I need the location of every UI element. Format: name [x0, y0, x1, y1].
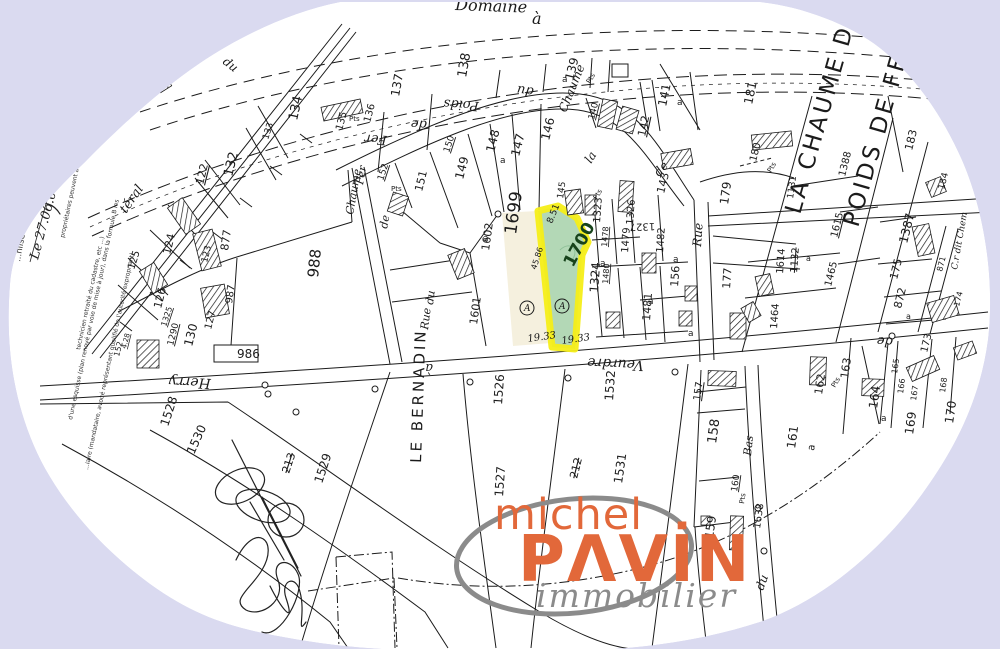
map-label-1482: 1482: [655, 227, 668, 253]
map-label-a: a: [688, 329, 694, 339]
map-label-988: 988: [304, 248, 325, 278]
map-label-a: a: [881, 414, 887, 424]
map-label-1323: 1323: [592, 197, 605, 223]
building-footprint: [564, 189, 583, 215]
map-label-pts: Pts: [349, 115, 360, 123]
map-label-veurdre: Veurdre: [587, 354, 645, 373]
map-label-a: a: [600, 259, 606, 269]
cadastral-map: DomaineàdutéralPoidsdudeFerChaumeladeFer…: [0, 0, 1000, 649]
map-label-1479: 1479: [620, 227, 633, 253]
map-label-1526: 1526: [491, 374, 507, 405]
map-label-à: à: [532, 9, 542, 28]
map-label-a: a: [648, 297, 654, 307]
map-label-du: du: [423, 290, 438, 306]
building-footprint: [606, 312, 620, 328]
map-paper: [9, 2, 990, 649]
map-label-de: de: [377, 213, 392, 229]
map-label-du: du: [516, 82, 535, 99]
screenshot-root: DomaineàdutéralPoidsdudeFerChaumeladeFer…: [0, 0, 1000, 649]
building-footprint: [685, 286, 697, 301]
map-label-a: a: [806, 254, 811, 263]
map-label-1478: 1478: [600, 226, 610, 247]
map-label-pts: Pts: [391, 185, 402, 193]
map-label-a: a: [500, 156, 506, 166]
map-label-1532: 1532: [602, 370, 618, 401]
map-label-a: a: [483, 234, 489, 244]
building-footprint: [137, 340, 159, 368]
building-footprint: [642, 253, 656, 273]
map-label-bas: Bas: [741, 434, 756, 457]
map-label-1132: 1132: [789, 247, 802, 273]
map-oval: DomaineàdutéralPoidsdudeFerChaumeladeFer…: [9, 0, 994, 649]
map-label-poids: Poids: [443, 96, 480, 114]
map-label-156: 156: [668, 265, 682, 287]
map-label-1464: 1464: [769, 303, 782, 329]
building-footprint: [679, 311, 692, 326]
map-label-fer: Fer: [363, 130, 388, 147]
map-label-de: de: [410, 116, 427, 132]
building-footprint: [708, 371, 737, 387]
map-label-1614: 1614: [775, 248, 788, 274]
map-label-pts: Pts: [738, 492, 747, 504]
map-label-rue: Rue: [690, 222, 706, 248]
map-label-a: A: [558, 302, 566, 312]
building-footprint: [730, 313, 746, 339]
logo-tagline: immobilier: [536, 576, 737, 615]
map-label-a: a: [673, 255, 679, 265]
map-label-a: a: [906, 312, 911, 321]
map-label-177: 177: [720, 267, 734, 289]
map-label-1327: 1327: [629, 220, 655, 232]
map-label-986: 986: [237, 347, 260, 361]
map-label-a: A: [523, 304, 531, 314]
map-label-domaine: Domaine: [454, 0, 528, 17]
map-label-a: a: [677, 98, 683, 108]
map-label-de: de: [876, 333, 893, 349]
map-label-herry: Herry: [168, 373, 213, 391]
